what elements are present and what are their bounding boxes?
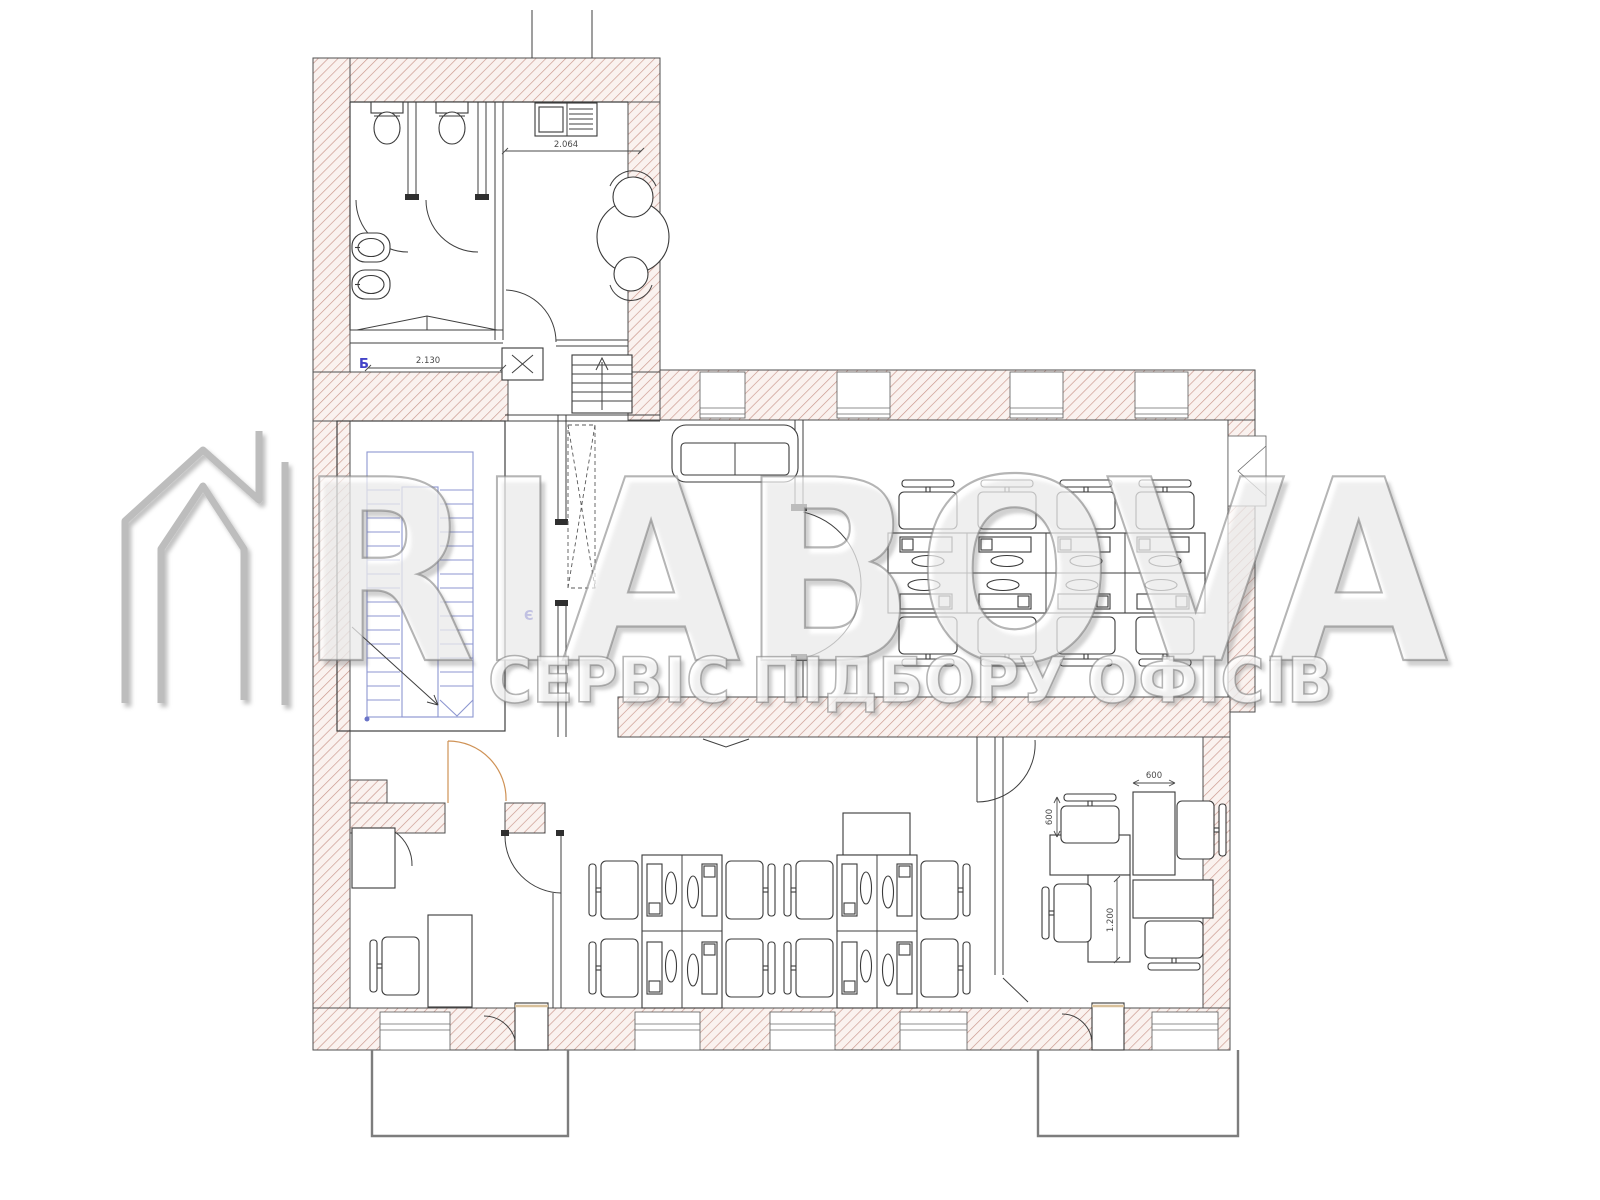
stove-unit <box>535 103 597 136</box>
window-top-1 <box>700 372 745 418</box>
duct-shaft <box>502 348 543 380</box>
dim-2064-label: 2.064 <box>554 140 578 150</box>
dim-600-top-label: 600 <box>1146 771 1162 781</box>
window-bottom-3 <box>770 1012 835 1050</box>
watermark: RIABOVA RIABOVA СЕРВІС ПІДБОРУ ОФІСІВ СЕ… <box>125 427 1453 726</box>
balconies <box>372 1050 1238 1136</box>
bottom-door-leaf <box>1003 978 1028 1002</box>
dim-desk-600-left: 600 <box>1045 797 1060 837</box>
window-top-4 <box>1135 372 1188 418</box>
entrance-stairs <box>572 355 632 413</box>
dim-600-left-label: 600 <box>1045 809 1055 825</box>
dim-2130-label: 2.130 <box>416 356 440 366</box>
stall-door-2 <box>426 200 478 252</box>
desk-cluster-b <box>784 813 970 1008</box>
sanitary-block <box>352 102 497 330</box>
watermark-tagline: СЕРВІС ПІДБОРУ ОФІСІВ <box>488 644 1333 717</box>
toilet-2 <box>436 102 468 144</box>
window-top-2 <box>837 372 890 418</box>
kitchen-door <box>506 290 556 342</box>
desk-cluster-a <box>589 855 775 1008</box>
dim-1200-label: 1.200 <box>1106 908 1116 932</box>
floor-plan-svg: 2.130 2.064 600 600 1.200 Б Є RIABOVA RI <box>0 0 1600 1200</box>
office-door-right <box>977 737 1035 802</box>
window-bottom-5 <box>1152 1012 1218 1050</box>
cabinet <box>352 828 395 888</box>
private-office <box>352 828 472 1007</box>
watermark-logo <box>125 431 285 705</box>
sink-1 <box>352 233 390 262</box>
window-bottom-1 <box>380 1012 450 1050</box>
dim-desk-600-top: 600 <box>1133 771 1175 786</box>
desk <box>428 915 472 1007</box>
dim-toilet-width: 2.130 <box>365 356 506 371</box>
floorplan-canvas: 2.130 2.064 600 600 1.200 Б Є RIABOVA RI <box>0 0 1600 1200</box>
window-top-3 <box>1010 372 1063 418</box>
window-bottom-2 <box>635 1012 700 1050</box>
section-marker: Б <box>359 357 369 372</box>
balcony-right <box>1038 1050 1238 1136</box>
private-office-door <box>505 836 561 893</box>
balcony-left <box>372 1050 568 1136</box>
stair-vestibule-door <box>448 741 506 803</box>
cabinet <box>843 813 910 855</box>
corner-office-desks <box>1042 792 1226 970</box>
window-bottom-4 <box>900 1012 967 1050</box>
cloak-counter <box>357 316 497 330</box>
sink-2 <box>352 270 390 299</box>
toilet-1 <box>371 102 403 144</box>
dim-kitchen-unit: 2.064 <box>502 140 644 154</box>
